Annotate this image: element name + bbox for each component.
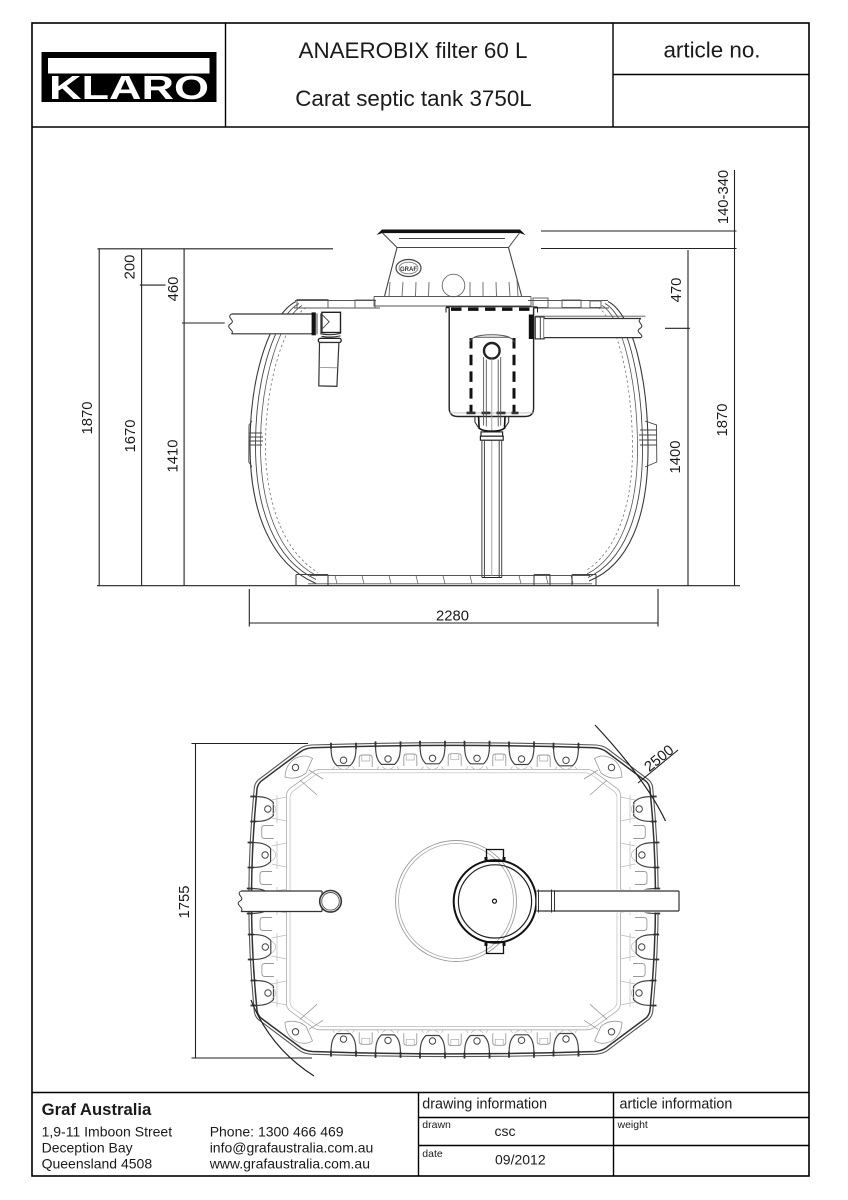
svg-text:2280: 2280 — [436, 609, 469, 625]
svg-text:drawn: drawn — [422, 1119, 451, 1131]
svg-text:date: date — [422, 1148, 443, 1160]
svg-text:1755: 1755 — [177, 886, 193, 919]
svg-text:Carat septic tank 3750L: Carat septic tank 3750L — [295, 86, 532, 111]
svg-text:drawing information: drawing information — [422, 1097, 547, 1113]
svg-text:csc: csc — [495, 1123, 516, 1139]
svg-text:ANAEROBIX filter 60 L: ANAEROBIX filter 60 L — [299, 38, 528, 63]
svg-text:460: 460 — [166, 277, 182, 302]
svg-text:1870: 1870 — [715, 404, 731, 437]
svg-text:470: 470 — [669, 278, 685, 303]
svg-text:www.grafaustralia.com.au: www.grafaustralia.com.au — [209, 1156, 370, 1172]
svg-text:140-340: 140-340 — [716, 170, 732, 224]
svg-text:Queensland 4508: Queensland 4508 — [42, 1156, 153, 1172]
svg-text:1,9-11 Imboon Street: 1,9-11 Imboon Street — [42, 1124, 173, 1140]
svg-text:weight: weight — [617, 1119, 648, 1131]
svg-text:Phone: 1300 466 469: Phone: 1300 466 469 — [210, 1124, 344, 1140]
svg-text:09/2012: 09/2012 — [495, 1152, 546, 1168]
svg-text:1870: 1870 — [80, 402, 96, 435]
svg-text:Deception Bay: Deception Bay — [42, 1140, 133, 1156]
svg-text:1400: 1400 — [668, 441, 684, 474]
svg-text:1410: 1410 — [166, 440, 182, 473]
svg-text:article no.: article no. — [663, 38, 760, 63]
svg-text:GRAF: GRAF — [400, 267, 417, 273]
svg-text:article information: article information — [620, 1097, 733, 1113]
svg-text:KLARO: KLARO — [49, 69, 209, 106]
svg-text:200: 200 — [123, 255, 139, 280]
svg-text:1670: 1670 — [123, 420, 139, 453]
svg-text:Graf Australia: Graf Australia — [42, 1100, 152, 1119]
svg-text:info@grafaustralia.com.au: info@grafaustralia.com.au — [210, 1140, 374, 1156]
